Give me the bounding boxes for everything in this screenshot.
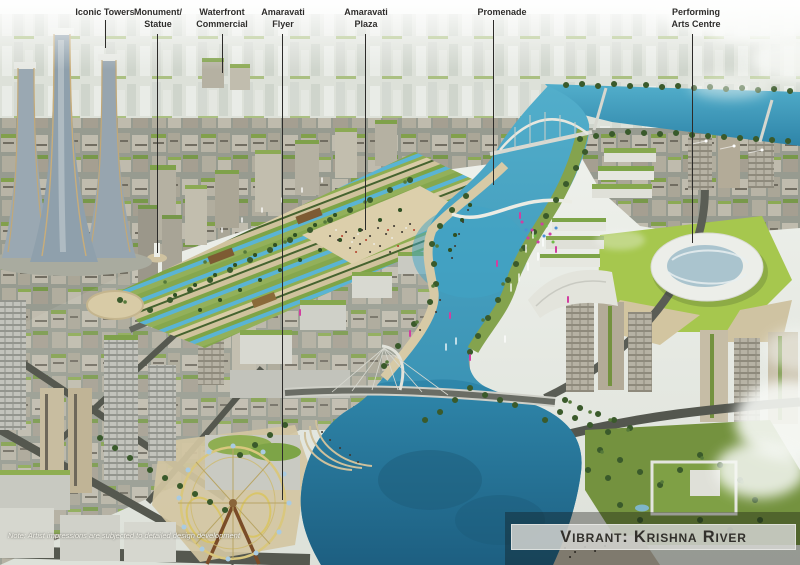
annotation-waterfront-commercial: Waterfront Commercial [192, 7, 252, 31]
title-banner-text: Vibrant: Krishna River [560, 526, 746, 548]
leader-line-performing-arts-centre [692, 34, 693, 243]
masterplan-view: Iconic Towers Monument/ Statue Waterfron… [0, 0, 800, 565]
masterplan-render [0, 0, 800, 565]
leader-line-amaravati-plaza [365, 34, 366, 230]
disclaimer-note: Note: Artist impressions are subjected t… [8, 531, 240, 540]
annotation-promenade: Promenade [462, 7, 542, 19]
annotation-amaravati-plaza: Amaravati Plaza [340, 7, 392, 31]
leader-line-monument-statue [157, 34, 158, 253]
annotation-amaravati-flyer: Amaravati Flyer [257, 7, 309, 31]
annotation-monument-statue: Monument/ Statue [129, 7, 187, 31]
title-banner: Vibrant: Krishna River [511, 524, 796, 550]
leader-line-waterfront-commercial [222, 34, 223, 73]
leader-line-promenade [493, 20, 494, 185]
leader-line-amaravati-flyer [282, 34, 283, 500]
leader-line-iconic-towers [105, 20, 106, 48]
annotation-performing-arts-centre: Performing Arts Centre [665, 7, 727, 31]
